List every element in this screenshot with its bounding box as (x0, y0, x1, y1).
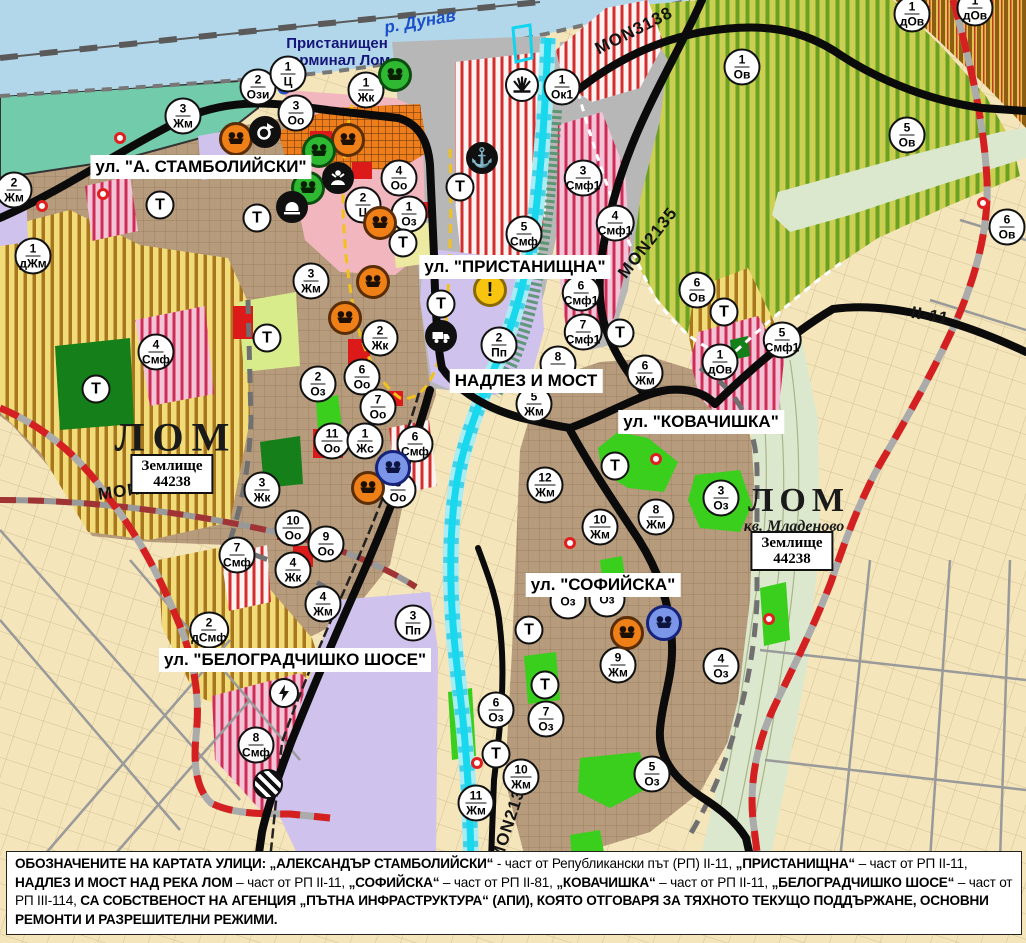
red-dot-icon (114, 132, 126, 144)
transport-marker: Т (146, 191, 175, 220)
street-label: ул. "КОВАЧИШКА" (618, 410, 784, 434)
zone-marker: 4Смф1 (596, 205, 635, 242)
street-label: ул. "А. СТАМБОЛИЙСКИ" (90, 155, 311, 179)
map-legend-note: ОБОЗНАЧЕНИТЕ НА КАРТАТА УЛИЦИ: „АЛЕКСАНД… (6, 851, 1022, 935)
legend-text-segment: – част от РП II-11, (855, 856, 967, 871)
zone-marker: 2Жк (362, 320, 399, 357)
road-number-label: MON3138 (592, 3, 676, 59)
legend-text-segment: - част от Републикански път (РП) II-11, (493, 856, 735, 871)
fan-icon (505, 68, 539, 102)
zone-marker: 1Ц (270, 56, 307, 93)
zone-marker: 1Жс (347, 423, 384, 460)
zone-marker: 7Смф (219, 537, 256, 574)
red-dot-icon (977, 197, 989, 209)
zone-marker: 7Оз (528, 701, 565, 738)
monument-orange-icon (610, 616, 644, 650)
zone-marker: 2дСмф (189, 612, 229, 649)
monument-orange-icon (331, 123, 365, 157)
street-label: ул. "ПРИСТАНИЩНА" (419, 255, 610, 279)
road-number-label: II-11 (910, 303, 951, 329)
zone-marker: 9Оо (308, 526, 345, 563)
zone-marker: 1дОв (702, 344, 739, 381)
transport-marker: Т (446, 173, 475, 202)
red-dot-icon (650, 453, 662, 465)
zone-marker: 10Жм (582, 509, 619, 546)
zone-marker: 5Смф (506, 216, 543, 253)
transport-marker: Т (710, 298, 739, 327)
zone-marker: 2Оз (300, 366, 337, 403)
roundabout-icon (249, 116, 281, 148)
legend-text-segment: „КОВАЧИШКА“ (556, 875, 655, 890)
zone-marker: 8Жм (638, 499, 675, 536)
zone-marker: 1Ов (724, 49, 761, 86)
transport-marker: Т (531, 671, 560, 700)
zone-marker: 6Жм (627, 355, 664, 392)
zone-marker: 6Ов (989, 209, 1026, 246)
zone-marker: 3Жм (293, 263, 330, 300)
red-dot-icon (36, 200, 48, 212)
zone-marker: 1Ок1 (544, 69, 581, 106)
zone-marker: 6Смф1 (562, 275, 601, 312)
zone-marker: 2Пп (481, 327, 518, 364)
person-icon (322, 162, 354, 194)
zone-marker: 4Смф (138, 334, 175, 371)
transport-marker: Т (515, 616, 544, 645)
zone-marker: 6Ов (679, 272, 716, 309)
transport-marker: Т (82, 375, 111, 404)
red-dot-icon (97, 188, 109, 200)
zone-marker: 5Смф1 (763, 322, 802, 359)
zone-marker: 1дОв (957, 0, 994, 27)
zone-marker: 4Оз (703, 648, 740, 685)
zone-marker: 11Оо (314, 423, 351, 460)
legend-text-segment: „СОФИЙСКА“ (349, 875, 440, 890)
map-annotation-overlay: р. Дунав Пристанищен терминал Лом ЛОМ ЛО… (0, 0, 1026, 943)
monument-blue-icon (375, 450, 411, 486)
red-dot-icon (564, 537, 576, 549)
zone-marker: 8Смф (238, 727, 275, 764)
zone-marker: 10Жм (503, 759, 540, 796)
legend-text-segment: – част от РП II-81, (439, 875, 556, 890)
tunnel-icon (276, 191, 308, 223)
legend-text-segment: НАДЛЕЗ И МОСТ НАД РЕКА ЛОМ (15, 875, 233, 890)
zone-marker: 1дЖм (15, 238, 52, 275)
red-dot-icon (763, 613, 775, 625)
zone-marker: 5Оз (634, 756, 671, 793)
zone-marker: 3Жм (165, 98, 202, 135)
legend-text-segment: „БЕЛОГРАДЧИШКО ШОСЕ“ (772, 875, 955, 890)
zone-marker: 7Смф1 (564, 314, 603, 351)
red-dot-icon (471, 757, 483, 769)
transport-marker: Т (606, 319, 635, 348)
town-label-lom-east: ЛОМ (748, 482, 850, 520)
monument-orange-icon (363, 206, 397, 240)
street-label: ул. "БЕЛОГРАДЧИШКО ШОСЕ" (159, 648, 431, 672)
zone-marker: 4Оо (381, 160, 418, 197)
monument-orange-icon (219, 122, 253, 156)
zoning-map-screenshot: р. Дунав Пристанищен терминал Лом ЛОМ ЛО… (0, 0, 1026, 943)
striped-post-icon (253, 769, 283, 799)
street-label: НАДЛЕЗ И МОСТ (450, 369, 603, 393)
zone-marker: 10Оо (275, 510, 312, 547)
legend-text-segment: СА СОБСТВЕНОСТ НА АГЕНЦИЯ „ПЪТНА ИНФРАСТ… (15, 893, 989, 927)
legend-text-segment: ОБОЗНАЧЕНИТЕ НА КАРТАТА УЛИЦИ: „АЛЕКСАНД… (15, 856, 493, 871)
monument-blue-icon (646, 605, 682, 641)
monument-green-icon (378, 58, 412, 92)
zone-marker: 4Жм (305, 586, 342, 623)
monument-orange-icon (356, 265, 390, 299)
transport-marker: Т (427, 290, 456, 319)
zone-marker: 7Оо (360, 389, 397, 426)
zone-marker: 12Жм (527, 467, 564, 504)
land-unit-box-east: Землище44238 (750, 531, 833, 571)
transport-marker: Т (601, 452, 630, 481)
lightning-icon (269, 678, 299, 708)
river-danube-label: р. Дунав (383, 6, 457, 38)
zone-marker: 3Оз (703, 480, 740, 517)
zone-marker: 5Ов (889, 117, 926, 154)
zone-marker: 2Жм (0, 172, 33, 209)
zone-marker: 1дОв (894, 0, 931, 33)
zone-marker: 3Оо (278, 95, 315, 132)
zone-marker: 4Жк (275, 552, 312, 589)
zone-marker: 11Жм (458, 785, 495, 822)
transport-marker: Т (243, 204, 272, 233)
transport-marker: Т (253, 324, 282, 353)
truck-icon (425, 320, 457, 352)
legend-text-segment: – част от РП II-11, (233, 875, 349, 890)
legend-text-segment: „ПРИСТАНИЩНА“ (736, 856, 855, 871)
zone-marker: 6Оз (478, 692, 515, 729)
anchor-icon: ⚓ (466, 142, 498, 174)
legend-text-segment: – част от РП II-11, (656, 875, 772, 890)
street-label: ул. "СОФИЙСКА" (526, 573, 681, 597)
transport-marker: Т (482, 740, 511, 769)
zone-marker: 9Жм (600, 647, 637, 684)
monument-orange-icon (328, 301, 362, 335)
zone-marker: 3Смф1 (564, 160, 603, 197)
zone-marker: 3Пп (395, 605, 432, 642)
zone-marker: 3Жк (244, 472, 281, 509)
land-unit-box-west: Землище44238 (130, 454, 213, 494)
